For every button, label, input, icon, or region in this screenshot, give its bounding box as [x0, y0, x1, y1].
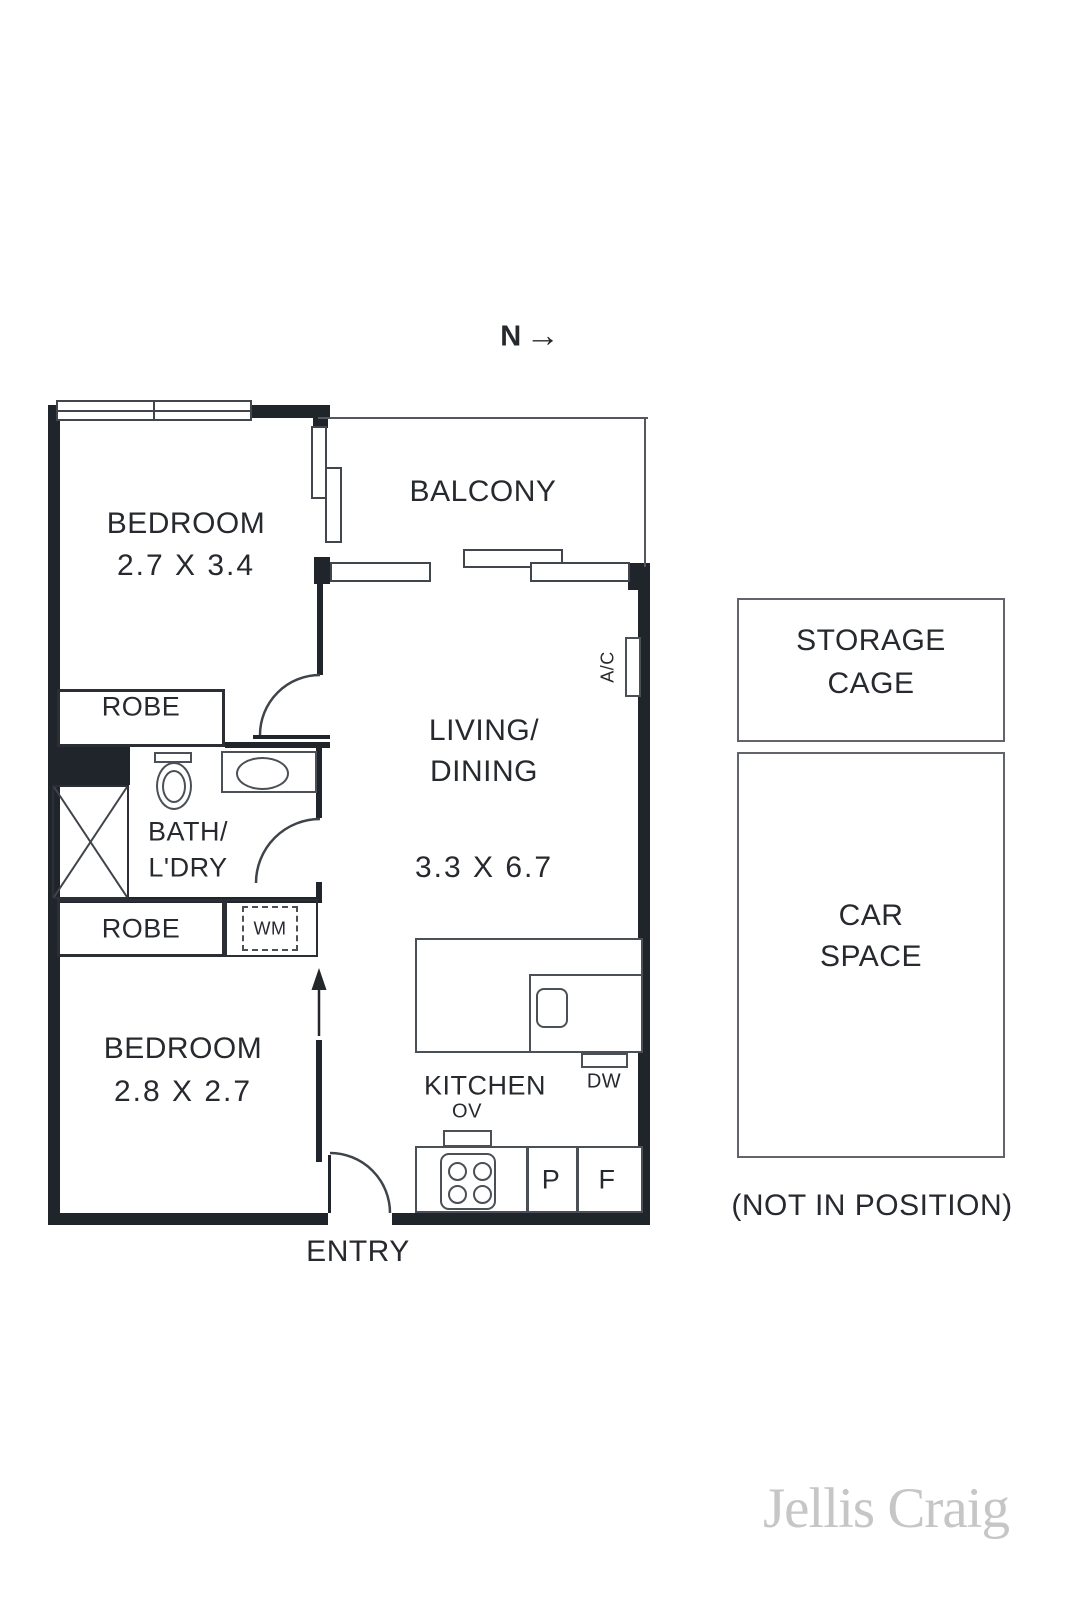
fridge-divider [576, 1146, 579, 1213]
living-label-line2: DINING [430, 755, 538, 789]
floorplan-canvas: N → [0, 0, 1067, 1600]
window-bedroom1 [56, 400, 252, 421]
not-in-position-note: (NOT IN POSITION) [731, 1189, 1012, 1223]
robe-bottom-label: ROBE [102, 914, 181, 945]
dishwasher-label: DW [587, 1071, 621, 1094]
wall-bedroom2-right [316, 1040, 322, 1162]
balcony-label: BALCONY [410, 475, 557, 509]
wall-segment [225, 742, 330, 748]
burner [448, 1185, 467, 1204]
storage-cage-label-line1: STORAGE [796, 624, 946, 658]
balcony-rail-right [644, 417, 646, 567]
north-arrow-icon: → [526, 319, 560, 353]
window-divider [153, 402, 155, 419]
balcony-rail-top [318, 417, 648, 419]
kitchen-label: KITCHEN [424, 1071, 546, 1102]
toilet-bowl-inner [162, 770, 186, 803]
entry-direction-arrow-head [312, 968, 327, 990]
north-indicator: N → [500, 321, 559, 354]
sliding-panel-bedroom1-balcony-b [325, 467, 342, 543]
washing-machine-label: WM [254, 919, 287, 940]
wall-balcony-corner-left [314, 557, 330, 584]
entry-door-leaf [328, 1155, 331, 1213]
dishwasher-box [581, 1053, 628, 1068]
north-label: N [500, 321, 521, 354]
door-arc-bath [256, 819, 320, 883]
entry-label: ENTRY [306, 1235, 410, 1269]
bath-label-line2: L'DRY [148, 853, 227, 884]
car-space-label-line1: CAR [839, 899, 904, 933]
bedroom1-dimensions: 2.7 X 3.4 [117, 549, 255, 583]
living-dimensions: 3.3 X 6.7 [415, 851, 553, 885]
bedroom1-label: BEDROOM [107, 507, 266, 541]
wall-bottom-left [48, 1213, 328, 1225]
sliding-panel-balcony-right [530, 562, 630, 582]
pantry-label: P [542, 1165, 561, 1196]
oven-label: OV [452, 1101, 482, 1124]
ac-unit [625, 637, 641, 697]
basin [236, 757, 289, 790]
wall-bottom-right [392, 1213, 650, 1225]
burner [473, 1185, 492, 1204]
ac-label: A/C [598, 651, 619, 683]
bedroom2-dimensions: 2.8 X 2.7 [114, 1075, 252, 1109]
storage-cage-label-line2: CAGE [827, 667, 914, 701]
pantry-divider [526, 1146, 529, 1213]
car-space-label-line2: SPACE [820, 940, 922, 974]
oven-box [443, 1130, 492, 1147]
wall-bedroom1-right [317, 583, 323, 675]
fridge-label: F [599, 1165, 616, 1196]
burner [473, 1162, 492, 1181]
bedroom2-label: BEDROOM [104, 1032, 263, 1066]
door-arc-entry [330, 1153, 390, 1213]
shaft-box [52, 785, 129, 899]
wall-duct-solid [53, 747, 130, 785]
living-label-line1: LIVING/ [429, 714, 539, 748]
wall-segment [253, 735, 330, 739]
robe-top-label: ROBE [102, 692, 181, 723]
agency-logo: Jellis Craig [763, 1476, 1009, 1541]
wall-balcony-corner-right [628, 563, 650, 590]
burner [448, 1162, 467, 1181]
kitchen-sink [536, 988, 568, 1028]
bath-label-line1: BATH/ [148, 817, 228, 848]
door-arc-bedroom1 [260, 675, 320, 735]
sliding-panel-balcony-left [330, 562, 431, 582]
